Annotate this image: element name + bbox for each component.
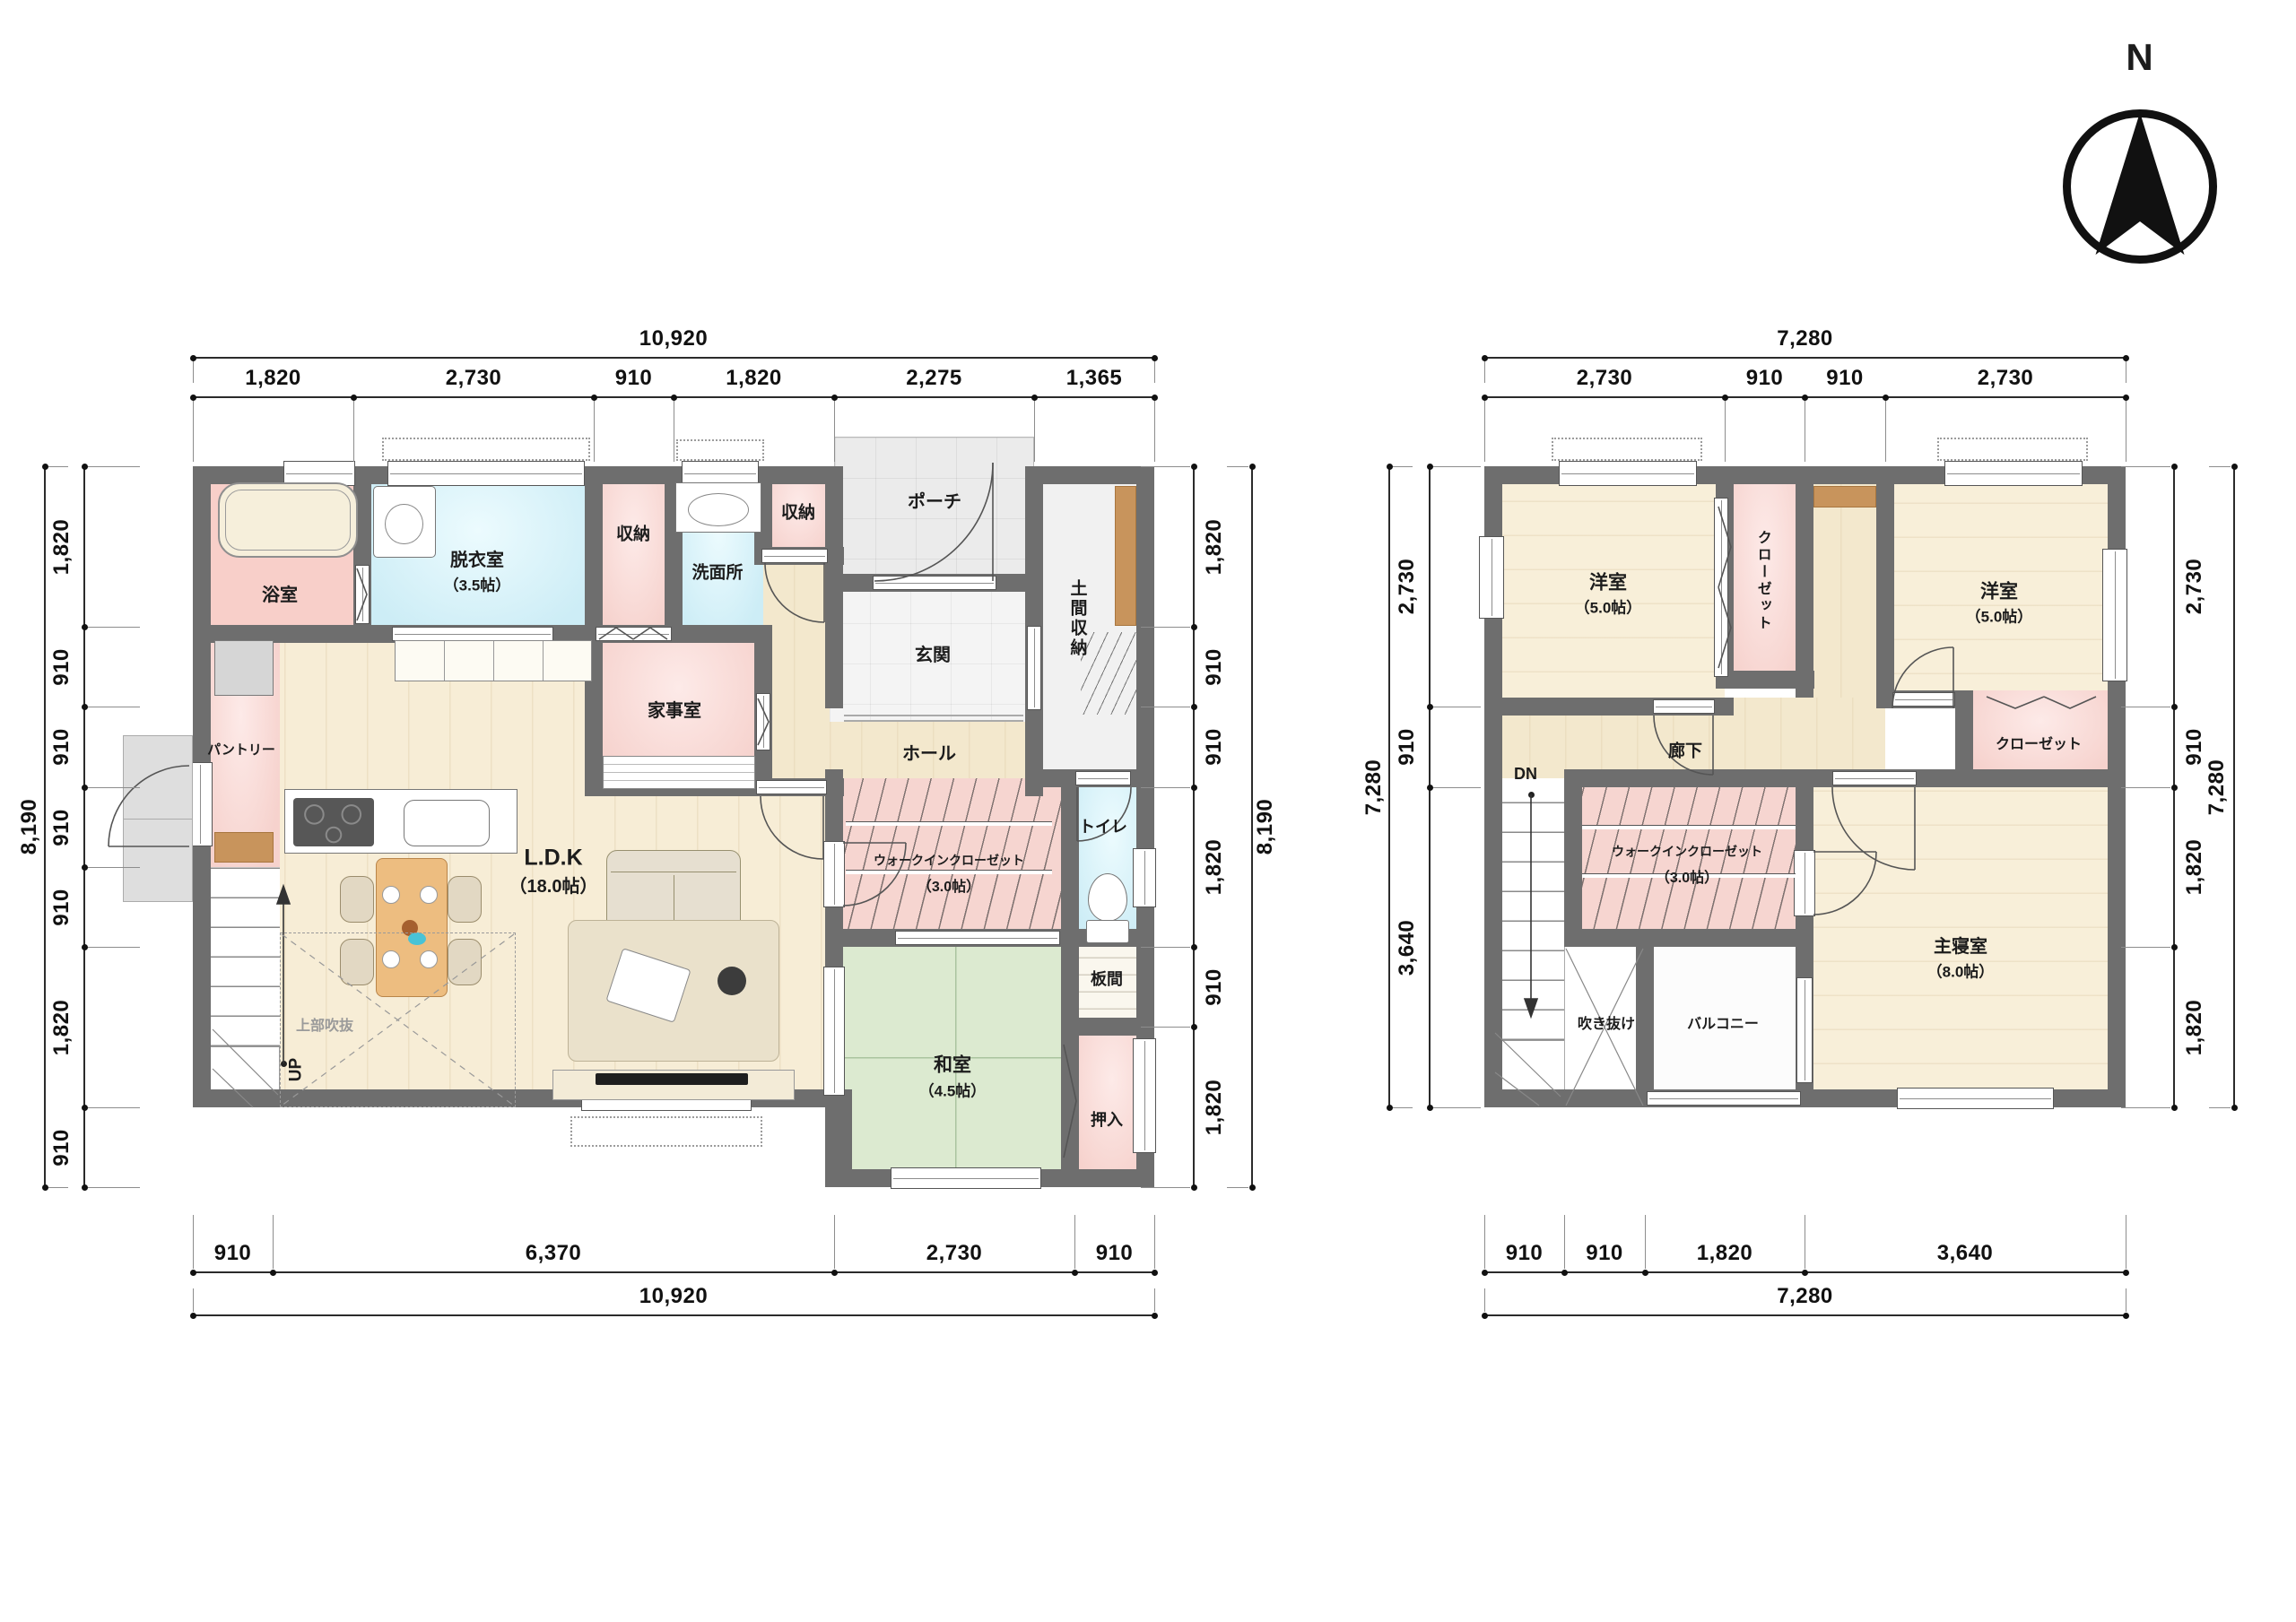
1f-stove bbox=[293, 798, 374, 846]
2f-top-seg-label-2: 910 bbox=[1773, 366, 1917, 391]
1f-window-band-17 bbox=[756, 693, 770, 750]
1f-window-band-6 bbox=[891, 1167, 1041, 1189]
2f-right-total-dot-0 bbox=[2231, 464, 2238, 470]
2f-top-seg-ext-2 bbox=[1805, 399, 1806, 462]
1f-right-seg-dot-1 bbox=[1191, 624, 1197, 630]
1f-top-seg-dot-0 bbox=[190, 395, 196, 401]
1f-right-seg-dot-6 bbox=[1191, 1184, 1197, 1191]
2f-left-total-ext-0 bbox=[1391, 466, 1413, 468]
2f-wall-6 bbox=[1876, 466, 1894, 699]
2f-window-band-2 bbox=[1944, 461, 2083, 486]
1f-right-seg-ext-6 bbox=[1141, 1187, 1190, 1189]
1f-bottom-seg-label-1: 6,370 bbox=[482, 1241, 625, 1266]
1f-bottom-total-dot-1 bbox=[1152, 1313, 1158, 1319]
1f-storage-a-room bbox=[594, 475, 674, 634]
2f-right-total-ext-1 bbox=[2209, 1107, 2231, 1109]
2f-wall-11 bbox=[1564, 769, 1813, 787]
1f-top-seg-label-5: 1,365 bbox=[1022, 366, 1166, 391]
1f-wall-9 bbox=[585, 466, 603, 643]
2f-right-seg-ext-2 bbox=[2121, 787, 2170, 789]
2f-top-seg-ext-1 bbox=[1725, 399, 1726, 462]
2f-label-7: ウォークインクローゼット bbox=[1612, 845, 1762, 858]
2f-bottom-seg-label-3: 3,640 bbox=[1893, 1241, 2037, 1266]
2f-top-seg-dot-1 bbox=[1722, 395, 1728, 401]
2f-right-seg-ext-0 bbox=[2121, 466, 2170, 468]
2f-right-seg-dot-2 bbox=[2171, 785, 2178, 791]
2f-wic-rod bbox=[1582, 825, 1796, 829]
1f-top-seg-ext-0 bbox=[193, 399, 195, 462]
compass-circle bbox=[2063, 109, 2217, 264]
1f-top-total-line bbox=[193, 357, 1154, 359]
1f-left-seg-line bbox=[83, 466, 85, 1187]
2f-bottom-seg-ext-3 bbox=[1805, 1215, 1806, 1269]
1f-label-17: 板間 bbox=[1091, 971, 1123, 989]
2f-wall-7 bbox=[1716, 671, 1814, 689]
2f-window-band-11 bbox=[1897, 1088, 2054, 1109]
1f-genkan-step-line bbox=[844, 720, 1023, 722]
1f-label-12: L.D.K bbox=[524, 846, 582, 871]
1f-top-seg-ext-2 bbox=[594, 399, 596, 462]
1f-label-18: 和室 bbox=[934, 1054, 971, 1075]
1f-label-22: UP bbox=[288, 1058, 307, 1081]
2f-bottom-total-ext-1 bbox=[2126, 1288, 2127, 1312]
2f-bottom-total-label-0: 7,280 bbox=[1734, 1284, 1877, 1309]
1f-label-8: 土間収納 bbox=[1067, 579, 1086, 658]
1f-label-10: ホール bbox=[902, 744, 956, 764]
1f-back-door-step bbox=[123, 735, 193, 902]
2f-bottom-seg-dot-2 bbox=[1642, 1270, 1648, 1276]
1f-bottom-seg-dot-2 bbox=[831, 1270, 838, 1276]
1f-top-seg-dot-2 bbox=[591, 395, 597, 401]
1f-bottom-seg-dot-4 bbox=[1152, 1270, 1158, 1276]
2f-right-total-line bbox=[2233, 466, 2235, 1107]
2f-top-seg-ext-3 bbox=[1885, 399, 1887, 462]
1f-bottom-seg-dot-1 bbox=[270, 1270, 276, 1276]
2f-window-band-6 bbox=[1892, 692, 1955, 707]
1f-left-total-line bbox=[44, 466, 46, 1187]
1f-window-band-16 bbox=[355, 565, 370, 624]
2f-left-seg-label-0: 2,730 bbox=[1395, 515, 1420, 658]
2f-left-total-dot-1 bbox=[1387, 1105, 1393, 1111]
1f-left-seg-ext-7 bbox=[86, 1187, 140, 1189]
1f-left-seg-dot-2 bbox=[82, 704, 88, 710]
2f-top-seg-label-3: 2,730 bbox=[1934, 366, 2077, 391]
1f-bottom-total-line bbox=[193, 1314, 1154, 1316]
1f-window-band-10 bbox=[761, 549, 828, 563]
1f-top-seg-dot-5 bbox=[1031, 395, 1038, 401]
1f-top-total-dot-0 bbox=[190, 355, 196, 361]
1f-bottom-total-ext-1 bbox=[1154, 1288, 1156, 1312]
1f-bottom-seg-line bbox=[193, 1271, 1154, 1273]
1f-right-total-ext-1 bbox=[1227, 1187, 1248, 1189]
1f-window-band-14 bbox=[1027, 626, 1041, 710]
2f-left-total-label-0: 7,280 bbox=[1361, 716, 1387, 859]
1f-left-seg-ext-5 bbox=[86, 947, 140, 949]
1f-right-seg-dot-4 bbox=[1191, 944, 1197, 950]
2f-left-total-dot-0 bbox=[1387, 464, 1393, 470]
1f-window-band-11 bbox=[823, 841, 845, 907]
2f-top-seg-dot-2 bbox=[1802, 395, 1808, 401]
2f-left-seg-dot-3 bbox=[1427, 1105, 1433, 1111]
1f-label-7: 玄関 bbox=[915, 646, 951, 665]
2f-bottom-total-dot-1 bbox=[2123, 1313, 2129, 1319]
1f-top-seg-ext-1 bbox=[353, 399, 355, 462]
2f-bottom-seg-ext-4 bbox=[2126, 1215, 2127, 1269]
2f-top-seg-ext-4 bbox=[2126, 399, 2127, 462]
1f-right-seg-label-5: 1,820 bbox=[1202, 1036, 1227, 1179]
2f-top-total-ext-0 bbox=[1484, 360, 1486, 383]
1f-label-9: 家事室 bbox=[648, 701, 701, 721]
1f-right-seg-ext-0 bbox=[1141, 466, 1190, 468]
2f-window-band-10 bbox=[1647, 1091, 1801, 1106]
2f-window-band-9 bbox=[1796, 977, 1813, 1083]
1f-tv bbox=[596, 1073, 748, 1085]
1f-right-seg-ext-3 bbox=[1141, 787, 1190, 789]
1f-window-band-5 bbox=[1133, 1038, 1156, 1153]
2f-window-band-5 bbox=[1653, 699, 1715, 714]
2f-top-total-dot-0 bbox=[1482, 355, 1488, 361]
2f-top-total-dot-1 bbox=[2123, 355, 2129, 361]
2f-right-seg-dot-4 bbox=[2171, 1105, 2178, 1111]
1f-left-seg-ext-2 bbox=[86, 707, 140, 708]
2f-label-12: 吹き抜け bbox=[1578, 1017, 1635, 1033]
1f-left-total-label-0: 8,190 bbox=[17, 755, 42, 898]
2f-wall-14 bbox=[1564, 929, 1813, 947]
1f-label-11: パントリー bbox=[207, 743, 275, 759]
1f-bottom-seg-label-2: 2,730 bbox=[883, 1241, 1026, 1266]
2f-label-11: （8.0帖） bbox=[1927, 965, 1995, 982]
1f-top-total-label-0: 10,920 bbox=[602, 326, 745, 351]
1f-label-16: トイレ bbox=[1079, 819, 1127, 837]
1f-plate bbox=[420, 886, 438, 904]
2f-left-seg-dot-2 bbox=[1427, 785, 1433, 791]
2f-left-seg-ext-3 bbox=[1431, 1107, 1481, 1109]
1f-cupboard bbox=[395, 640, 592, 681]
1f-window-band-18 bbox=[1075, 771, 1131, 785]
2f-left-seg-ext-0 bbox=[1431, 466, 1481, 468]
1f-window-band-1 bbox=[387, 461, 585, 486]
1f-top-total-ext-0 bbox=[193, 360, 195, 383]
1f-right-total-dot-0 bbox=[1249, 464, 1256, 470]
2f-window-canopy-0 bbox=[1552, 438, 1702, 461]
1f-right-seg-ext-1 bbox=[1141, 627, 1190, 629]
2f-label-0: 洋室 bbox=[1589, 572, 1627, 593]
2f-wall-13 bbox=[1564, 787, 1582, 947]
1f-right-seg-ext-2 bbox=[1141, 707, 1190, 708]
1f-window-band-15 bbox=[596, 627, 672, 641]
1f-left-seg-dot-5 bbox=[82, 944, 88, 950]
1f-right-total-ext-0 bbox=[1227, 466, 1248, 468]
1f-window-band-19 bbox=[392, 627, 553, 641]
2f-top-total-ext-1 bbox=[2126, 360, 2127, 383]
2f-dn-start-dot bbox=[1528, 792, 1535, 798]
1f-wic-rod bbox=[846, 821, 1052, 826]
1f-bottom-total-ext-0 bbox=[193, 1288, 195, 1312]
2f-window-band-4 bbox=[1714, 498, 1728, 677]
2f-closet-b-room bbox=[1964, 690, 2117, 778]
2f-right-seg-label-2: 1,820 bbox=[2182, 795, 2207, 939]
2f-bottom-seg-dot-3 bbox=[1802, 1270, 1808, 1276]
1f-label-3: 収納 bbox=[616, 526, 650, 545]
2f-right-seg-ext-3 bbox=[2121, 947, 2170, 949]
1f-window-band-4 bbox=[1133, 848, 1156, 907]
2f-right-total-ext-0 bbox=[2209, 466, 2231, 468]
2f-right-seg-dot-3 bbox=[2171, 944, 2178, 950]
2f-right-seg-ext-1 bbox=[2121, 707, 2170, 708]
1f-bottom-seg-ext-2 bbox=[834, 1215, 836, 1269]
1f-kitchen-sink bbox=[404, 800, 490, 846]
2f-window-band-7 bbox=[1832, 771, 1917, 785]
1f-wic-rod bbox=[846, 870, 1052, 874]
2f-label-9: クローゼット bbox=[1996, 737, 2082, 753]
1f-left-seg-ext-3 bbox=[86, 787, 140, 789]
1f-right-total-label-0: 8,190 bbox=[1253, 755, 1278, 898]
1f-left-seg-ext-6 bbox=[86, 1107, 140, 1109]
1f-chair bbox=[340, 876, 374, 923]
2f-bottom-seg-dot-0 bbox=[1482, 1270, 1488, 1276]
1f-label-19: （4.5帖） bbox=[919, 1084, 987, 1101]
2f-window-canopy-1 bbox=[1937, 438, 2088, 461]
1f-left-total-ext-0 bbox=[47, 466, 68, 468]
1f-left-seg-dot-1 bbox=[82, 624, 88, 630]
1f-right-total-dot-1 bbox=[1249, 1184, 1256, 1191]
2f-top-seg-ext-0 bbox=[1484, 399, 1486, 462]
floorplan-canvas: N 浴室脱衣室（3.5帖）収納洗面所収納ポーチ玄関土間収納家事室ホールパントリー… bbox=[0, 0, 2296, 1622]
2f-label-2: クローゼット bbox=[1754, 530, 1770, 632]
1f-top-seg-label-1: 2,730 bbox=[402, 366, 545, 391]
1f-top-total-dot-1 bbox=[1152, 355, 1158, 361]
2f-label-5: 廊下 bbox=[1668, 743, 1702, 762]
2f-bottom-total-line bbox=[1484, 1314, 2126, 1316]
1f-label-0: 浴室 bbox=[262, 585, 298, 605]
1f-stairs-up-room bbox=[202, 867, 280, 1046]
2f-label-13: バルコニー bbox=[1687, 1017, 1759, 1033]
2f-bottom-seg-dot-1 bbox=[1561, 1270, 1568, 1276]
1f-kaji-desk bbox=[603, 756, 755, 789]
2f-label-1: （5.0帖） bbox=[1575, 601, 1642, 618]
1f-label-6: ポーチ bbox=[908, 492, 961, 512]
2f-label-4: （5.0帖） bbox=[1966, 610, 2033, 627]
1f-bottom-total-label-0: 10,920 bbox=[602, 1284, 745, 1309]
1f-window-band-3 bbox=[873, 576, 996, 590]
1f-top-seg-label-4: 2,275 bbox=[863, 366, 1006, 391]
1f-right-seg-dot-5 bbox=[1191, 1024, 1197, 1030]
1f-left-seg-dot-4 bbox=[82, 864, 88, 871]
1f-left-total-dot-1 bbox=[42, 1184, 48, 1191]
1f-top-seg-label-0: 1,820 bbox=[202, 366, 345, 391]
1f-top-seg-ext-4 bbox=[834, 399, 836, 462]
2f-label-3: 洋室 bbox=[1980, 581, 2018, 602]
2f-wall-16 bbox=[1636, 947, 1654, 1107]
2f-label-8: （3.0帖） bbox=[1656, 871, 1718, 887]
2f-wall-5 bbox=[1796, 466, 1813, 698]
1f-left-seg-dot-3 bbox=[82, 785, 88, 791]
1f-window-canopy-2 bbox=[570, 1116, 762, 1147]
2f-label-6: DN bbox=[1514, 766, 1537, 784]
1f-window-canopy-0 bbox=[382, 438, 590, 461]
1f-genkan-step-line bbox=[844, 715, 1023, 716]
2f-left-seg-dot-0 bbox=[1427, 464, 1433, 470]
2f-bottom-total-dot-0 bbox=[1482, 1313, 1488, 1319]
1f-label-20: 押入 bbox=[1091, 1112, 1123, 1130]
2f-top-seg-label-0: 2,730 bbox=[1533, 366, 1676, 391]
1f-top-seg-dot-3 bbox=[671, 395, 677, 401]
1f-plate bbox=[382, 886, 400, 904]
1f-bottom-seg-dot-0 bbox=[190, 1270, 196, 1276]
1f-bottom-seg-dot-3 bbox=[1072, 1270, 1078, 1276]
1f-right-seg-ext-5 bbox=[1141, 1027, 1190, 1028]
1f-top-seg-dot-4 bbox=[831, 395, 838, 401]
2f-bottom-seg-label-2: 1,820 bbox=[1653, 1241, 1796, 1266]
2f-right-seg-label-3: 1,820 bbox=[2182, 956, 2207, 1099]
1f-label-21: 上部吹抜 bbox=[296, 1019, 353, 1035]
1f-label-5: 収納 bbox=[781, 505, 815, 524]
2f-bottom-total-ext-0 bbox=[1484, 1288, 1486, 1312]
1f-right-seg-ext-4 bbox=[1141, 947, 1190, 949]
1f-top-seg-ext-5 bbox=[1034, 399, 1036, 462]
2f-top-seg-dot-0 bbox=[1482, 395, 1488, 401]
1f-left-total-dot-0 bbox=[42, 464, 48, 470]
compass-north-label: N bbox=[2126, 37, 2153, 78]
2f-top-total-line bbox=[1484, 357, 2126, 359]
1f-toilet-tank bbox=[1086, 920, 1129, 943]
1f-left-seg-ext-1 bbox=[86, 627, 140, 629]
1f-doma-coat-shelf bbox=[1115, 486, 1136, 626]
1f-right-seg-dot-0 bbox=[1191, 464, 1197, 470]
1f-window-canopy-1 bbox=[676, 439, 764, 461]
1f-right-seg-dot-3 bbox=[1191, 785, 1197, 791]
1f-right-seg-dot-2 bbox=[1191, 704, 1197, 710]
2f-top-seg-dot-4 bbox=[2123, 395, 2129, 401]
1f-window-band-12 bbox=[823, 967, 845, 1096]
2f-nook-shelf bbox=[1813, 486, 1876, 507]
1f-top-seg-dot-6 bbox=[1152, 395, 1158, 401]
1f-label-2: （3.5帖） bbox=[444, 578, 511, 595]
1f-floor-lamp bbox=[717, 967, 746, 995]
1f-left-seg-label-6: 910 bbox=[49, 1076, 74, 1219]
1f-top-seg-dot-1 bbox=[351, 395, 357, 401]
1f-label-15: （3.0帖） bbox=[918, 880, 980, 896]
2f-window-band-1 bbox=[1479, 536, 1504, 619]
2f-right-seg-ext-4 bbox=[2121, 1107, 2170, 1109]
1f-left-seg-ext-0 bbox=[86, 466, 140, 468]
1f-top-seg-label-3: 1,820 bbox=[683, 366, 826, 391]
2f-window-band-3 bbox=[2102, 549, 2127, 681]
1f-washing-machine bbox=[373, 486, 436, 558]
2f-left-seg-ext-2 bbox=[1431, 787, 1481, 789]
1f-wall-15 bbox=[1061, 787, 1079, 1187]
2f-right-seg-dot-0 bbox=[2171, 464, 2178, 470]
1f-label-1: 脱衣室 bbox=[450, 551, 504, 570]
1f-bottom-seg-label-0: 910 bbox=[161, 1241, 305, 1266]
1f-left-seg-ext-4 bbox=[86, 867, 140, 869]
2f-right-total-label-0: 7,280 bbox=[2205, 716, 2230, 859]
2f-left-seg-ext-1 bbox=[1431, 707, 1481, 708]
2f-top-seg-dot-3 bbox=[1883, 395, 1889, 401]
2f-stairs-down-room bbox=[1493, 778, 1573, 1040]
2f-window-band-8 bbox=[1794, 850, 1815, 916]
2f-label-10: 主寝室 bbox=[1934, 937, 1987, 957]
2f-left-total-ext-1 bbox=[1391, 1107, 1413, 1109]
2f-left-seg-label-1: 910 bbox=[1395, 675, 1420, 819]
2f-right-seg-label-0: 2,730 bbox=[2182, 515, 2207, 658]
2f-left-seg-dot-1 bbox=[1427, 704, 1433, 710]
2f-left-total-line bbox=[1388, 466, 1390, 1107]
2f-bottom-seg-dot-4 bbox=[2123, 1270, 2129, 1276]
1f-left-seg-dot-7 bbox=[82, 1184, 88, 1191]
1f-chair bbox=[448, 876, 482, 923]
1f-label-4: 洗面所 bbox=[691, 565, 743, 584]
1f-label-14: ウォークインクローゼット bbox=[874, 854, 1024, 867]
1f-top-seg-ext-6 bbox=[1154, 399, 1156, 462]
1f-left-seg-dot-0 bbox=[82, 464, 88, 470]
1f-left-seg-dot-6 bbox=[82, 1105, 88, 1111]
1f-bottom-seg-label-3: 910 bbox=[1043, 1241, 1187, 1266]
1f-pantry-shelf bbox=[214, 832, 274, 863]
1f-bottom-total-dot-0 bbox=[190, 1313, 196, 1319]
2f-right-total-dot-1 bbox=[2231, 1105, 2238, 1111]
2f-top-total-label-0: 7,280 bbox=[1734, 326, 1877, 351]
1f-refrigerator bbox=[214, 640, 274, 696]
1f-window-band-13 bbox=[895, 931, 1060, 945]
1f-wash-basin bbox=[675, 482, 761, 533]
2f-right-seg-dot-1 bbox=[2171, 704, 2178, 710]
1f-bathtub bbox=[218, 482, 358, 558]
1f-label-13: （18.0帖） bbox=[509, 877, 598, 897]
2f-left-seg-label-2: 3,640 bbox=[1395, 876, 1420, 1019]
1f-toilet-bowl bbox=[1088, 873, 1127, 922]
1f-window-band-9 bbox=[756, 780, 827, 794]
1f-wall-26 bbox=[665, 625, 772, 643]
1f-doma-shelf-hatch bbox=[1081, 632, 1136, 715]
1f-right-seg-line bbox=[1193, 466, 1195, 1187]
2f-window-band-0 bbox=[1559, 461, 1697, 486]
1f-top-seg-ext-3 bbox=[674, 399, 675, 462]
